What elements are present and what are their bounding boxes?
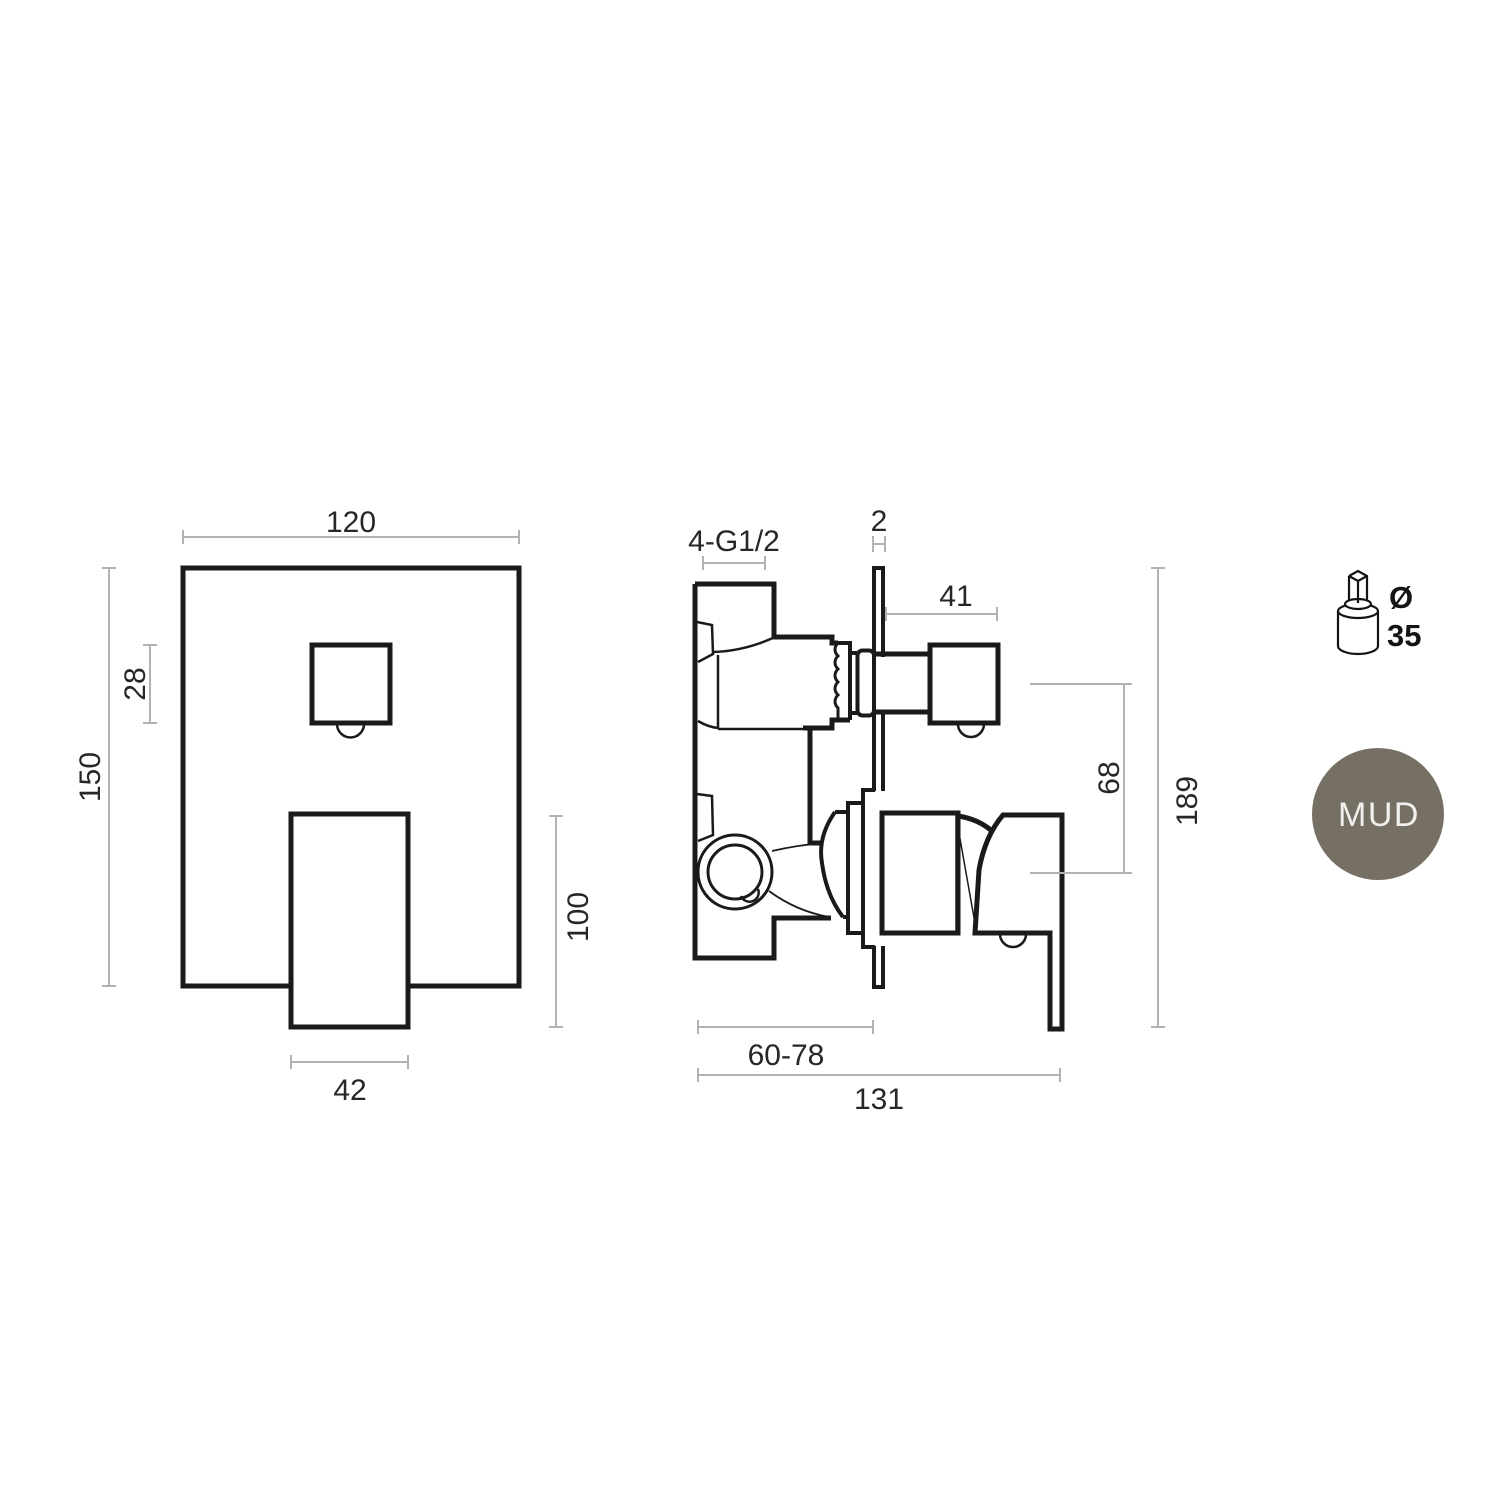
diameter-value: 35	[1387, 618, 1421, 653]
cartridge-icon	[1338, 571, 1378, 654]
front-view	[183, 568, 519, 1027]
dim-label-150: 150	[74, 752, 107, 802]
dim-label-42: 42	[333, 1074, 366, 1107]
dim-label-131: 131	[854, 1083, 904, 1116]
lever-hub-curve	[958, 816, 992, 831]
dim-line-42	[291, 1055, 408, 1069]
front-diverter-button	[312, 645, 390, 723]
diverter-retaining-flange	[858, 651, 875, 716]
dim-label-2: 2	[871, 505, 888, 538]
handle-escutcheon	[882, 813, 958, 933]
front-lever-handle	[291, 814, 408, 1027]
dim-line-ports	[703, 556, 765, 570]
dim-label-ports: 4-G1/2	[688, 525, 780, 558]
finish-badge-label: MUD	[1338, 796, 1420, 834]
dim-label-41: 41	[939, 580, 972, 613]
technical-drawing-page: 120 150 28 100 42 4-G1/2 2 41 68 189 60-…	[0, 0, 1500, 1500]
lever-screw-arc	[1000, 934, 1026, 947]
valve-body-fill	[695, 584, 850, 958]
knob-screw-arc	[958, 724, 984, 737]
dim-line-100	[549, 816, 563, 1027]
dim-label-189: 189	[1171, 776, 1204, 826]
side-lever-handle	[975, 815, 1062, 1029]
dim-label-68: 68	[1093, 761, 1126, 794]
diverter-thread-profile	[835, 643, 838, 718]
dim-label-100: 100	[562, 892, 595, 942]
dim-label-28: 28	[119, 667, 152, 700]
dim-line-recess	[698, 1020, 873, 1034]
diameter-symbol: Ø	[1389, 580, 1413, 615]
lever-hub-line	[959, 833, 976, 929]
valve-body-mid-edge	[810, 729, 821, 843]
side-diverter-knob	[930, 645, 998, 723]
dim-line-2	[873, 536, 885, 552]
dim-label-120: 120	[326, 506, 376, 539]
dim-line-189	[1151, 568, 1165, 1027]
mixer-valve-technical-drawing: 120 150 28 100 42 4-G1/2 2 41 68 189 60-…	[0, 0, 1500, 1500]
dim-label-recess: 60-78	[748, 1039, 825, 1072]
finish-badge: MUD	[1312, 748, 1444, 880]
side-view	[695, 568, 1062, 1029]
